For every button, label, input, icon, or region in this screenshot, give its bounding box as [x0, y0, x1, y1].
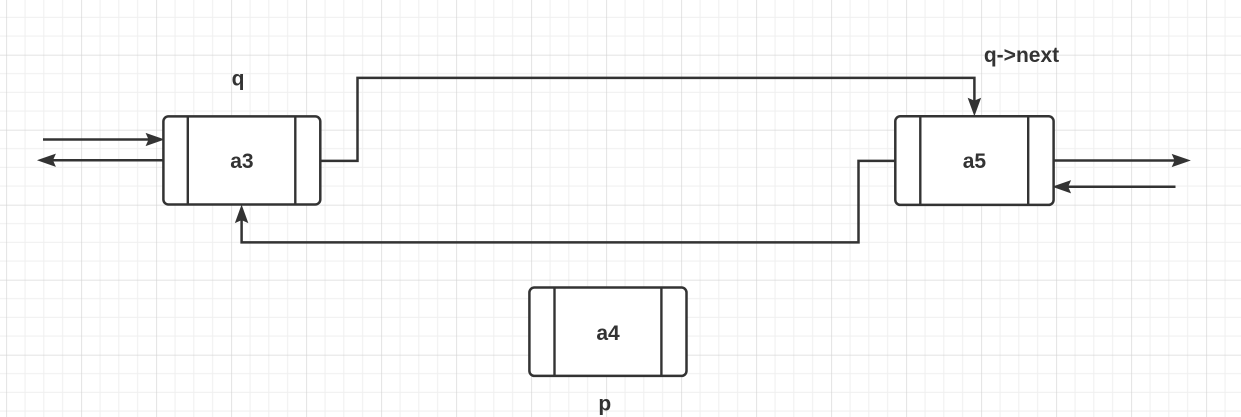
svg-text:a3: a3: [230, 150, 253, 173]
svg-text:q->next: q->next: [984, 44, 1059, 67]
svg-text:p: p: [598, 392, 611, 415]
svg-text:a5: a5: [963, 150, 987, 173]
svg-text:q: q: [232, 68, 245, 91]
svg-text:a4: a4: [596, 322, 620, 345]
